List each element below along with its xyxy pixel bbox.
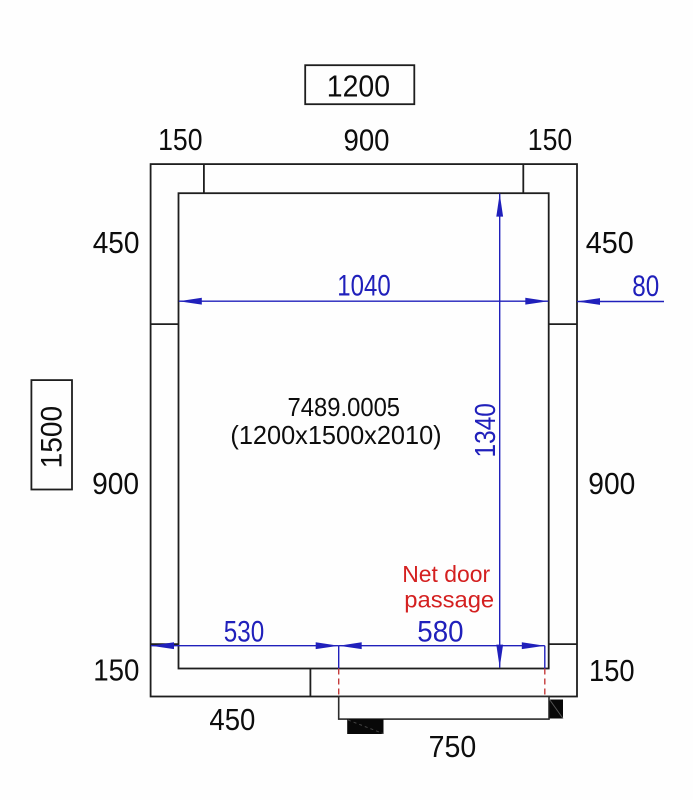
- svg-text:450: 450: [209, 702, 255, 737]
- svg-text:Net door: Net door: [402, 561, 490, 587]
- svg-text:80: 80: [632, 270, 659, 303]
- svg-text:150: 150: [93, 652, 139, 687]
- svg-text:(1200x1500x2010): (1200x1500x2010): [230, 420, 441, 450]
- svg-text:1340: 1340: [470, 403, 502, 457]
- svg-text:530: 530: [224, 615, 264, 648]
- svg-text:7489.0005: 7489.0005: [288, 392, 401, 422]
- svg-text:450: 450: [586, 225, 634, 260]
- svg-text:450: 450: [93, 225, 140, 260]
- svg-text:150: 150: [158, 122, 202, 157]
- svg-text:900: 900: [92, 466, 139, 501]
- svg-text:1500: 1500: [36, 406, 69, 469]
- svg-text:150: 150: [528, 122, 572, 157]
- svg-text:750: 750: [429, 729, 477, 764]
- svg-text:1200: 1200: [327, 69, 390, 104]
- svg-text:580: 580: [417, 615, 463, 648]
- svg-text:passage: passage: [404, 587, 494, 613]
- svg-text:900: 900: [588, 466, 635, 501]
- svg-text:150: 150: [589, 653, 635, 688]
- svg-text:1040: 1040: [337, 270, 390, 303]
- svg-text:900: 900: [344, 122, 390, 157]
